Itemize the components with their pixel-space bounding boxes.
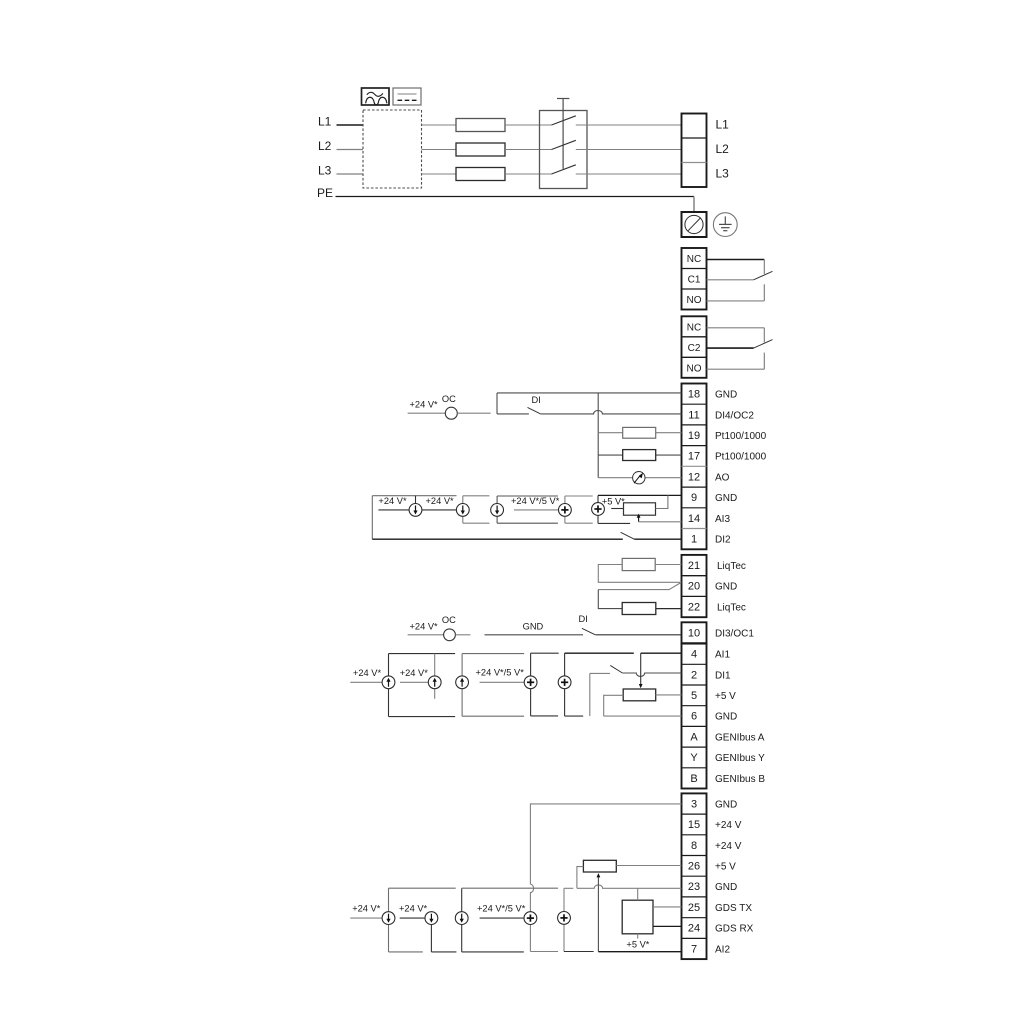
svg-text:1: 1 [691,534,697,546]
svg-text:GND: GND [715,390,737,401]
svg-text:Y: Y [690,752,698,764]
svg-text:GENIbus B: GENIbus B [715,774,765,785]
svg-text:GND: GND [715,582,737,593]
svg-text:4: 4 [691,649,697,661]
svg-text:OC: OC [442,394,456,404]
svg-text:Pt100/1000: Pt100/1000 [715,431,767,442]
svg-text:AI3: AI3 [715,514,730,525]
svg-text:10: 10 [688,628,700,640]
svg-text:L3: L3 [716,167,730,181]
svg-text:GDS RX: GDS RX [715,924,754,935]
svg-text:NO: NO [687,295,702,306]
svg-text:+24 V*/5 V*: +24 V*/5 V* [476,668,525,678]
svg-text:GND: GND [715,799,737,810]
svg-text:+5 V*: +5 V* [602,496,625,506]
svg-text:+24 V*: +24 V* [400,668,429,678]
svg-text:20: 20 [688,581,700,593]
svg-text:AO: AO [715,472,730,483]
svg-text:AI2: AI2 [715,944,730,955]
svg-text:GENIbus Y: GENIbus Y [715,753,765,764]
svg-text:DI4/OC2: DI4/OC2 [715,410,754,421]
svg-text:+24 V*/5 V*: +24 V*/5 V* [511,496,560,506]
svg-text:LiqTec: LiqTec [717,561,746,572]
svg-text:GENIbus A: GENIbus A [715,732,765,743]
svg-text:+24 V*: +24 V* [399,904,428,914]
svg-text:+24 V*: +24 V* [353,668,382,678]
svg-text:GND: GND [523,622,544,632]
svg-text:+24 V: +24 V [715,820,742,831]
svg-text:5: 5 [691,690,697,702]
svg-text:8: 8 [691,840,697,852]
svg-text:+24 V*: +24 V* [410,622,439,632]
svg-text:7: 7 [691,943,697,955]
svg-text:OC: OC [442,615,456,625]
svg-text:NC: NC [687,254,701,265]
svg-text:GND: GND [715,882,737,893]
svg-text:A: A [690,731,698,743]
svg-text:+5 V*: +5 V* [626,939,649,949]
svg-text:+5 V: +5 V [715,862,736,873]
svg-text:Pt100/1000: Pt100/1000 [715,452,767,463]
svg-text:+24 V*/5 V*: +24 V*/5 V* [477,904,526,914]
svg-text:DI: DI [579,614,588,624]
svg-text:23: 23 [688,881,700,893]
svg-text:DI1: DI1 [715,670,731,681]
svg-text:B: B [690,773,697,785]
svg-text:17: 17 [688,451,700,463]
svg-text:3: 3 [691,798,697,810]
svg-text:26: 26 [688,861,700,873]
svg-text:9: 9 [691,492,697,504]
svg-text:+24 V*: +24 V* [410,400,439,410]
svg-text:19: 19 [688,430,700,442]
svg-text:DI2: DI2 [715,535,731,546]
svg-text:+24 V*: +24 V* [378,496,407,506]
svg-text:L1: L1 [716,118,730,132]
svg-text:L3: L3 [318,164,332,178]
svg-text:25: 25 [688,902,700,914]
svg-text:15: 15 [688,819,700,831]
svg-text:+24 V*: +24 V* [352,904,381,914]
svg-text:C1: C1 [688,275,701,286]
svg-text:21: 21 [688,560,700,572]
svg-text:AI1: AI1 [715,650,730,661]
svg-text:+24 V*: +24 V* [426,496,455,506]
svg-text:DI: DI [532,395,541,405]
svg-text:11: 11 [688,409,699,421]
svg-text:+5 V: +5 V [715,691,736,702]
svg-text:18: 18 [688,389,700,401]
svg-text:L2: L2 [716,142,730,156]
svg-text:GND: GND [715,712,737,723]
svg-text:6: 6 [691,711,697,723]
svg-text:24: 24 [688,923,700,935]
svg-text:GND: GND [715,493,737,504]
svg-text:GDS TX: GDS TX [715,903,752,914]
svg-text:NC: NC [687,322,701,333]
svg-text:22: 22 [688,602,700,614]
svg-text:L1: L1 [318,115,332,129]
svg-text:LiqTec: LiqTec [717,603,746,614]
svg-text:DI3/OC1: DI3/OC1 [715,629,754,640]
svg-text:14: 14 [688,513,700,525]
svg-text:NO: NO [687,364,702,375]
svg-text:+24 V: +24 V [715,841,742,852]
svg-text:L2: L2 [318,139,332,153]
svg-text:2: 2 [691,669,697,681]
svg-text:C2: C2 [688,343,701,354]
svg-text:12: 12 [688,471,700,483]
svg-text:PE: PE [317,186,333,200]
